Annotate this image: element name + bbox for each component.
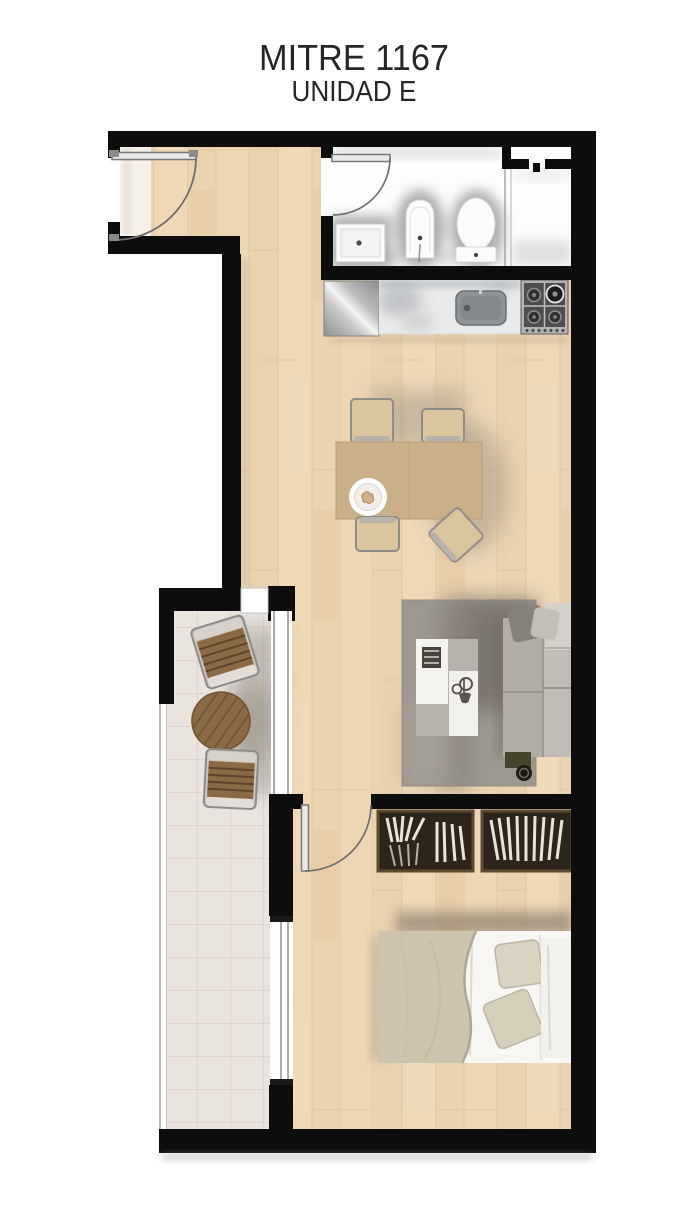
svg-text:MITRE 1167: MITRE 1167: [259, 37, 449, 78]
svg-text:UNIDAD E: UNIDAD E: [292, 76, 417, 108]
